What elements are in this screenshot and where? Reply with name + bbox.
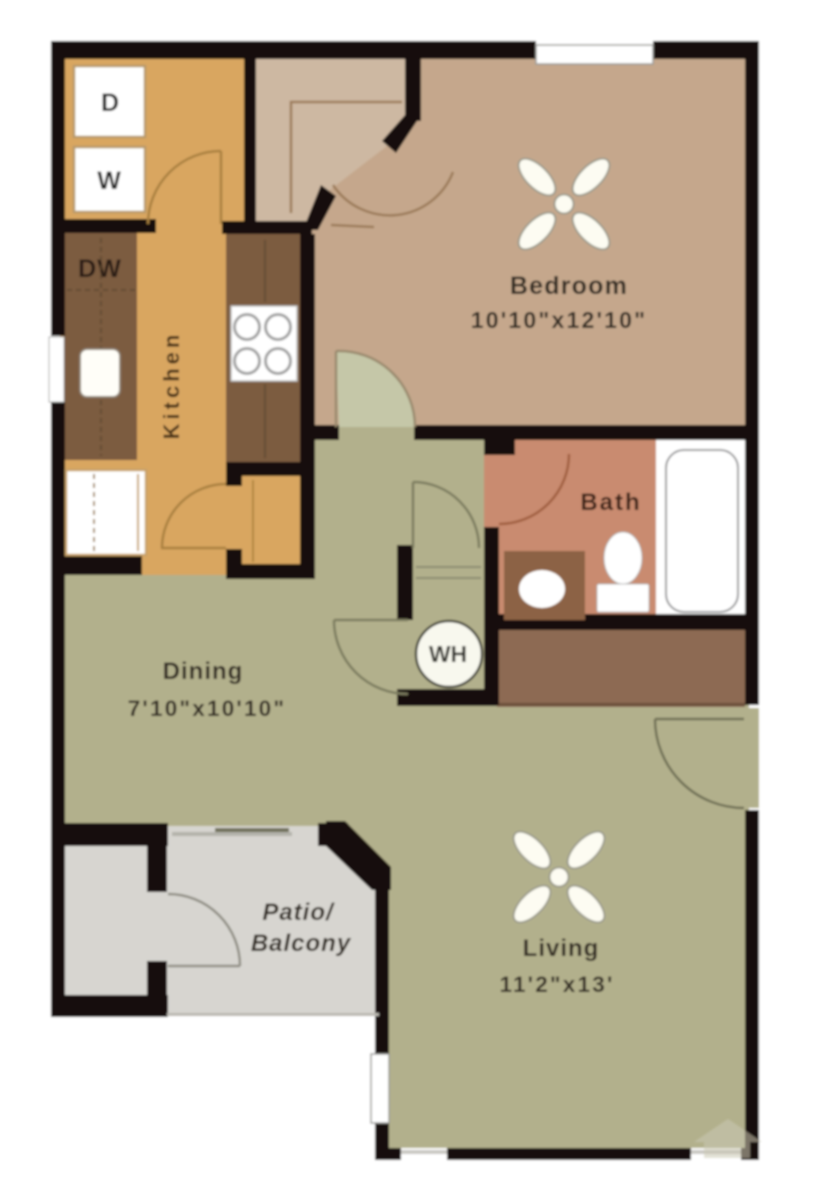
svg-text:Balcony: Balcony [251,930,352,957]
svg-text:Bath: Bath [580,489,641,516]
svg-text:Living: Living [523,935,600,962]
svg-text:Dining: Dining [163,658,244,685]
svg-text:DW: DW [78,255,122,283]
svg-text:Bedroom: Bedroom [510,272,628,300]
svg-text:7'10"x10'10": 7'10"x10'10" [128,696,287,721]
svg-text:D: D [101,89,119,117]
svg-text:11'2"x13': 11'2"x13' [499,972,614,997]
svg-text:W: W [97,167,121,195]
svg-text:Patio/: Patio/ [262,899,335,926]
svg-text:Kitchen: Kitchen [159,331,184,440]
svg-text:10'10"x12'10": 10'10"x12'10" [471,307,647,333]
svg-text:WH: WH [429,641,467,667]
